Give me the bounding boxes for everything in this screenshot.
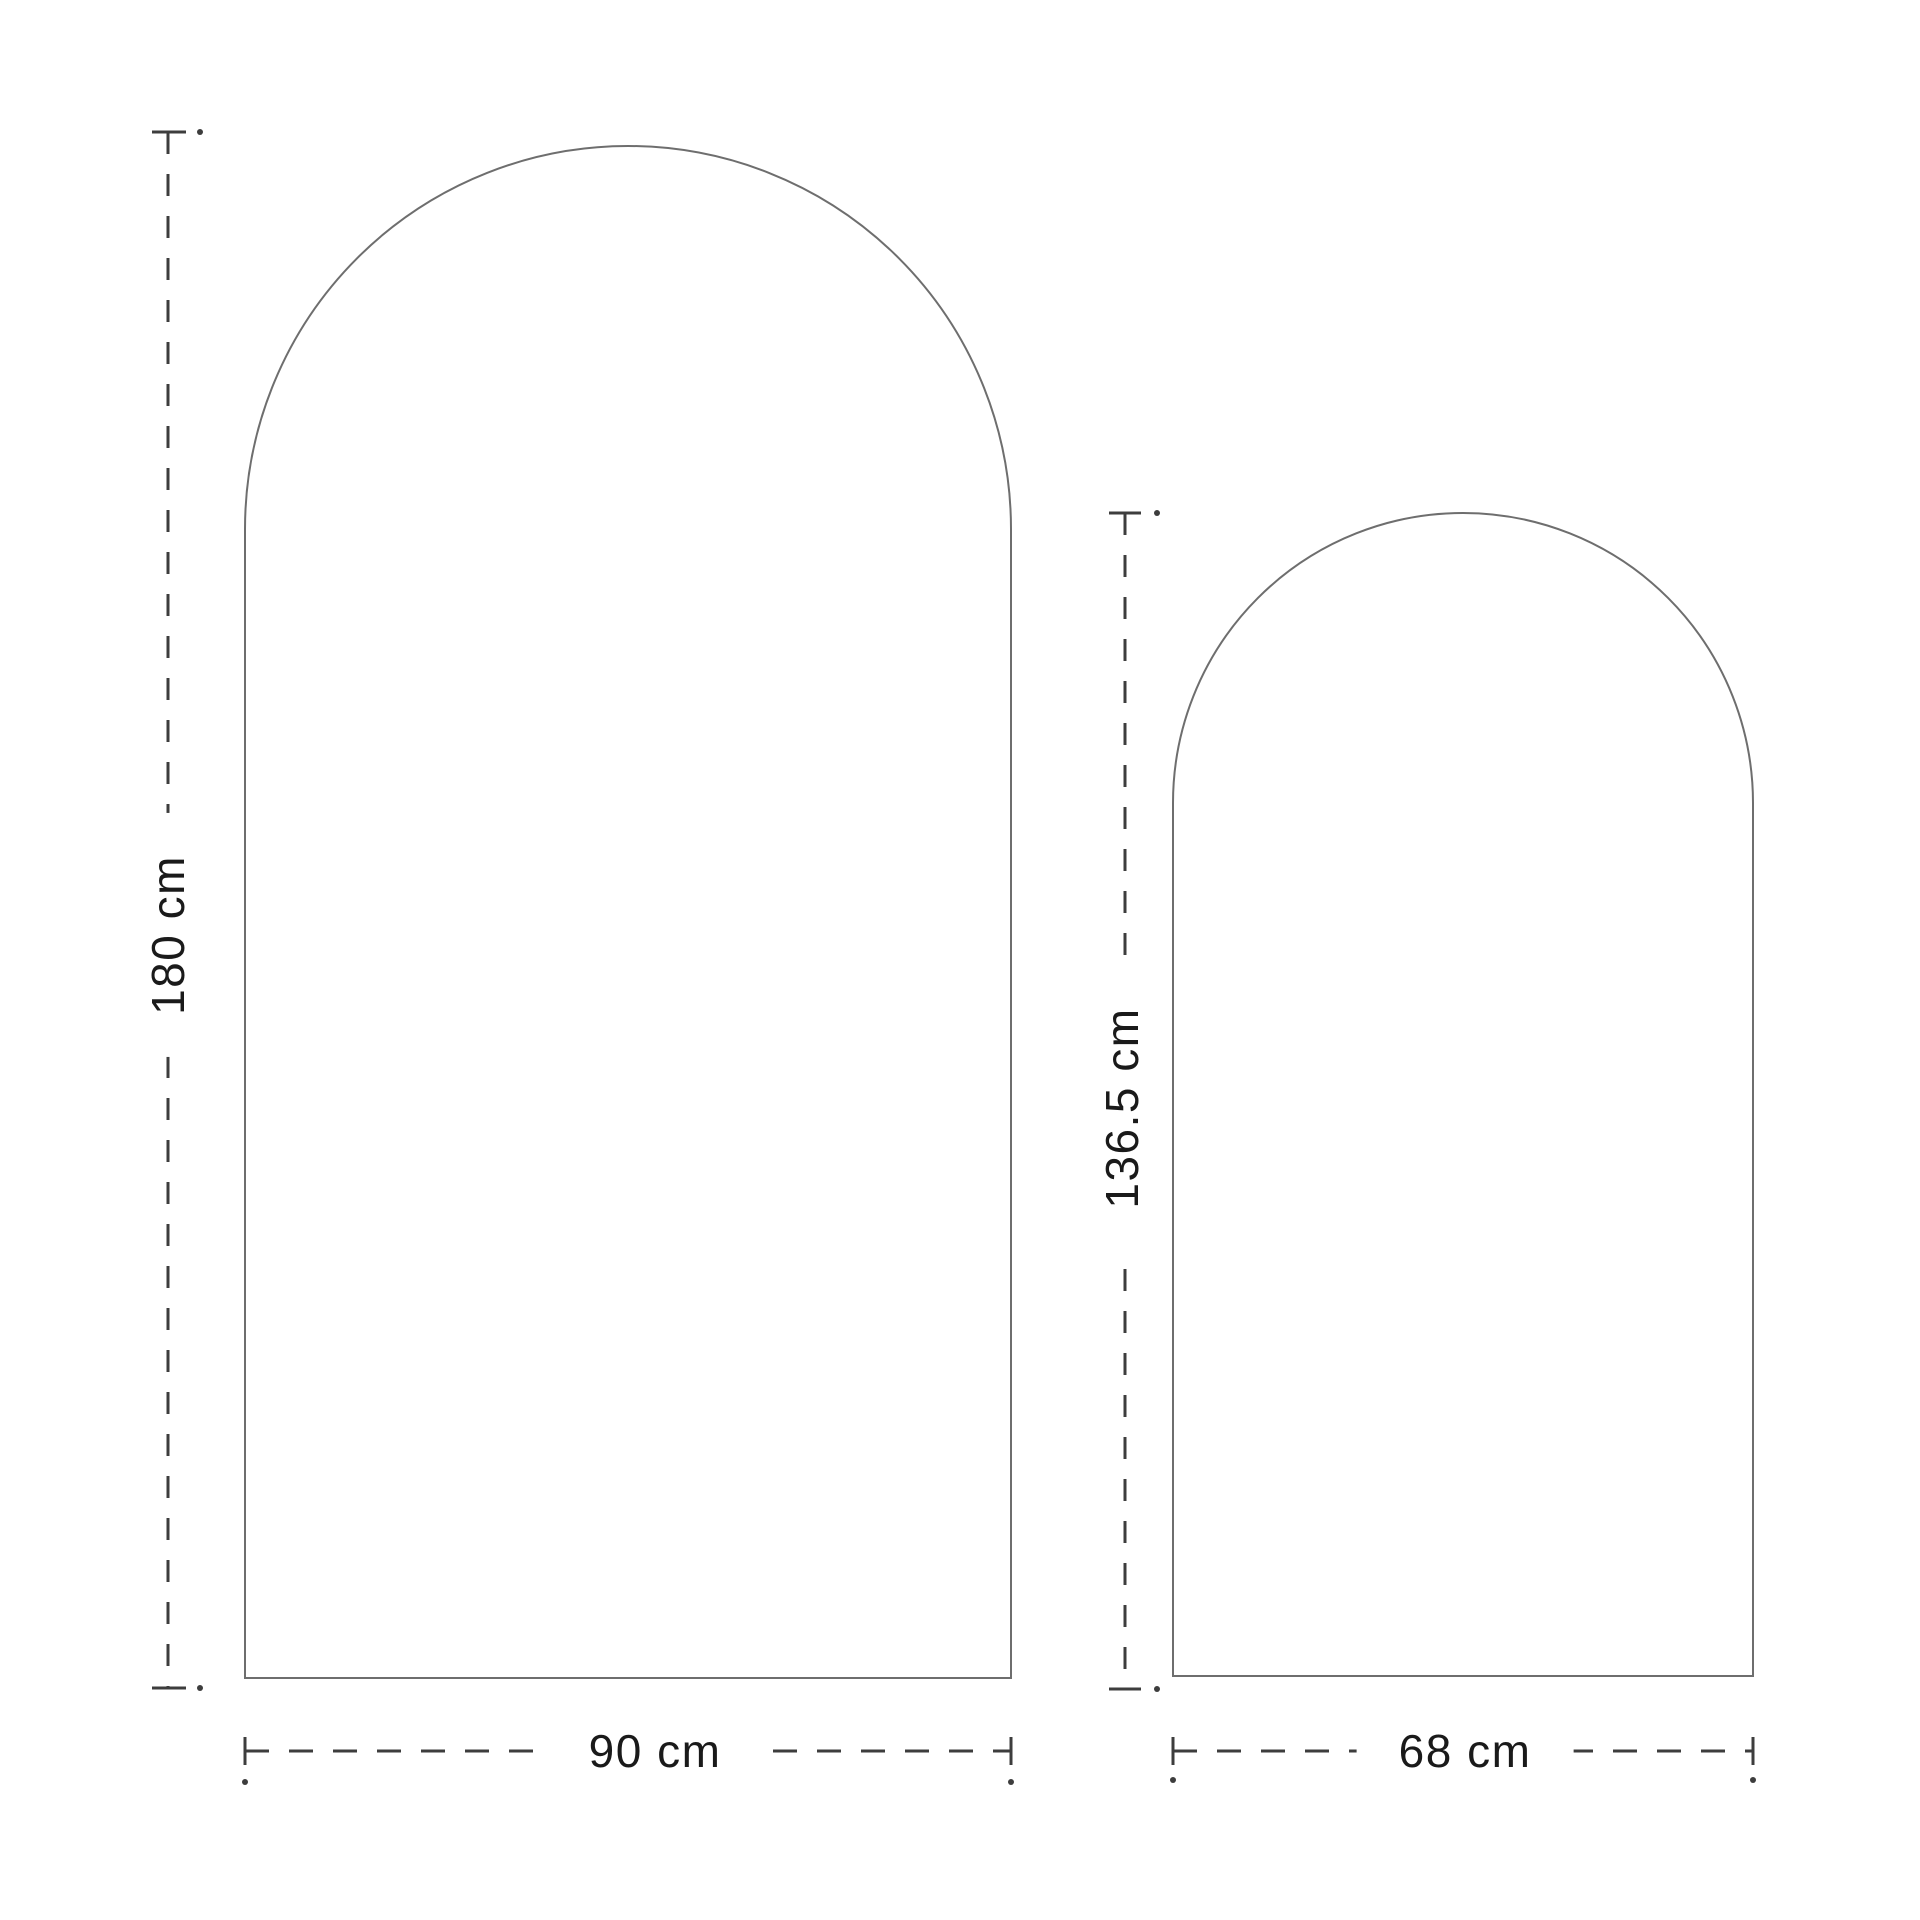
extension-dot (1750, 1777, 1756, 1783)
dimension-ticks-group (152, 132, 1753, 1765)
diagram-canvas (0, 0, 1920, 1920)
extension-dot (1154, 510, 1160, 516)
dimension-diagram: 180 cm 136.5 cm 90 cm 68 cm (0, 0, 1920, 1920)
large-arch-outline (245, 146, 1011, 1678)
extension-dot (1008, 1779, 1014, 1785)
large-arch-width-label: 90 cm (547, 1718, 764, 1784)
extension-dot (197, 1685, 203, 1691)
extension-dots-group (197, 129, 1756, 1785)
small-arch-height-label: 136.5 cm (1089, 965, 1155, 1250)
extension-dot (1170, 1777, 1176, 1783)
extension-dot (197, 129, 203, 135)
large-arch-height-label: 180 cm (135, 813, 201, 1057)
small-arch-outline (1173, 513, 1753, 1676)
arch-outlines-group (245, 146, 1753, 1678)
extension-dot (1154, 1686, 1160, 1692)
extension-dot (242, 1779, 248, 1785)
small-arch-width-label: 68 cm (1357, 1718, 1574, 1784)
dimension-lines-group (168, 132, 1753, 1751)
